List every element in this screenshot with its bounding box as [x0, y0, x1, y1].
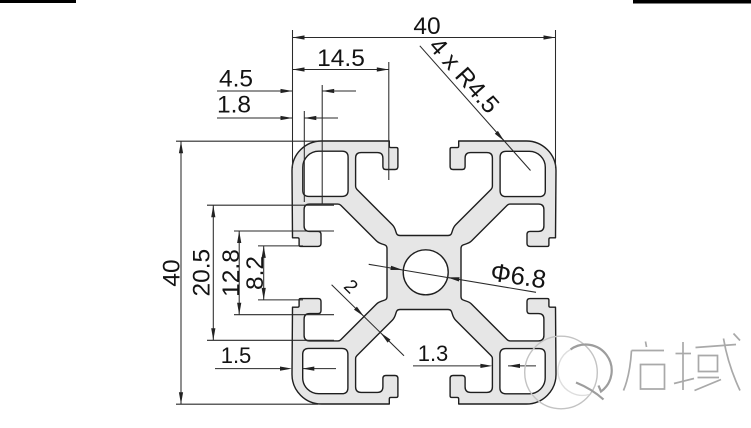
svg-text:14.5: 14.5: [317, 45, 365, 72]
svg-text:8.2: 8.2: [242, 256, 269, 290]
svg-text:4.5: 4.5: [219, 66, 253, 93]
svg-text:40: 40: [159, 259, 186, 286]
svg-text:1.8: 1.8: [217, 92, 251, 119]
svg-text:40: 40: [413, 13, 440, 40]
svg-text:1.3: 1.3: [418, 341, 449, 366]
svg-text:1.5: 1.5: [221, 343, 252, 368]
svg-text:20.5: 20.5: [189, 249, 216, 297]
svg-text:12.8: 12.8: [218, 249, 245, 297]
